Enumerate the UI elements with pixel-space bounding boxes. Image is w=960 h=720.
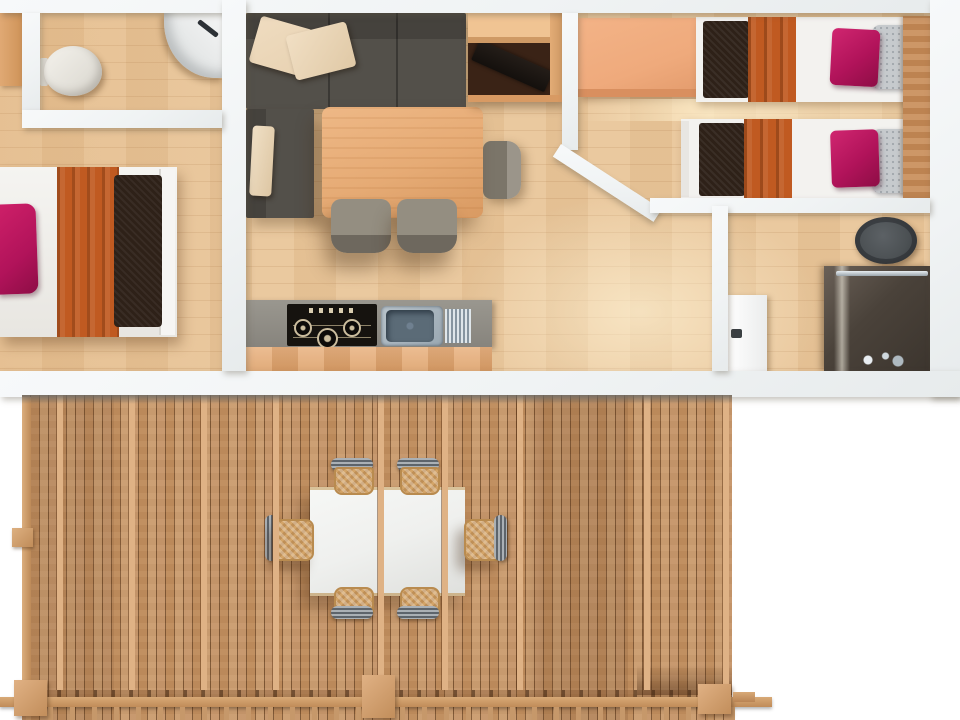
outdoor-chair-back xyxy=(331,606,373,619)
hob-burner xyxy=(294,319,312,337)
dining-chair xyxy=(331,199,391,253)
deck-top-shadow xyxy=(22,395,732,404)
twin-bed-1-orange-blanket xyxy=(748,17,796,102)
pergola-beam xyxy=(56,395,63,690)
door-handle xyxy=(731,329,742,338)
outdoor-chair-seat xyxy=(400,467,440,495)
pergola-beam xyxy=(272,395,279,690)
shower-rail xyxy=(836,271,928,276)
outdoor-chair-back xyxy=(397,606,439,619)
pergola-beam xyxy=(200,395,207,690)
wall-top xyxy=(0,0,960,13)
house-unit xyxy=(0,0,960,397)
wall-bottom xyxy=(0,371,960,397)
twin-bed-2-runner xyxy=(699,123,745,196)
sunlight-patch xyxy=(580,99,904,121)
double-bed xyxy=(0,167,177,337)
headboard-panel xyxy=(903,16,931,198)
wc-toilet xyxy=(44,46,102,96)
shower-room-door xyxy=(727,295,767,372)
cabinet-side xyxy=(550,13,562,102)
pergola-beam xyxy=(722,395,729,690)
shower-room-toilet xyxy=(855,217,917,264)
wall-showerroom-left xyxy=(712,206,728,371)
wall-living-twinroom xyxy=(562,13,578,150)
wall-wc-bottom xyxy=(22,110,222,128)
pergola-beam xyxy=(377,395,384,690)
wc-shelf xyxy=(0,13,22,86)
wardrobe-front-edge xyxy=(578,89,703,97)
cabinet-bottom-lip xyxy=(468,95,562,102)
twin-bed-1-magenta-pillow xyxy=(830,28,881,87)
laptop xyxy=(471,40,553,93)
outdoor-chair-back xyxy=(494,515,507,561)
double-bed-magenta-pillow xyxy=(0,203,39,294)
dining-chair xyxy=(397,199,457,253)
outdoor-chair-seat xyxy=(334,467,374,495)
twin-bed-2-footboard xyxy=(681,121,689,197)
media-cabinet xyxy=(468,13,562,102)
floorplan-scene xyxy=(0,0,960,720)
pergola-beam xyxy=(441,395,448,690)
twin-bed-2-magenta-pillow xyxy=(830,129,880,188)
hob-burner xyxy=(317,328,338,349)
railing-post xyxy=(14,680,47,716)
pergola-beam xyxy=(128,395,135,690)
gas-hob xyxy=(287,304,377,346)
double-bed-runner xyxy=(114,175,162,327)
sofa-cushion xyxy=(249,125,275,196)
kitchen-sink xyxy=(381,306,443,346)
hob-burner xyxy=(343,319,361,337)
wall-wc-left xyxy=(22,13,40,113)
railing-post xyxy=(362,675,395,718)
twin-bed-1-runner xyxy=(703,21,749,98)
sink-drainer xyxy=(445,309,471,343)
outdoor-chair-seat xyxy=(276,519,314,561)
shower-glass-reflection xyxy=(834,266,850,371)
double-bed-orange-blanket xyxy=(57,167,119,337)
railing-stub xyxy=(733,692,755,702)
twin-bed-2-orange-blanket xyxy=(744,119,792,199)
wall-twinroom-bottom xyxy=(650,198,930,213)
railing-post xyxy=(698,684,731,714)
wardrobe xyxy=(578,18,703,97)
pergola-beam xyxy=(516,395,523,690)
deck-left-rail xyxy=(22,397,31,697)
shower-enclosure xyxy=(824,266,930,371)
twin-bed-1 xyxy=(696,17,907,102)
wall-divider-bedroom-living xyxy=(222,0,246,371)
twin-bed-2 xyxy=(681,119,907,199)
deck xyxy=(22,395,732,720)
shower-fixtures xyxy=(858,348,908,368)
dining-chair-right xyxy=(483,141,521,199)
sink-basin xyxy=(386,310,434,342)
deck-left-rail-knob xyxy=(12,528,33,547)
pergola-beam xyxy=(643,395,650,690)
cabinet-top-shelf xyxy=(468,13,562,43)
wall-right xyxy=(930,0,960,397)
hob-knobs xyxy=(309,308,357,313)
